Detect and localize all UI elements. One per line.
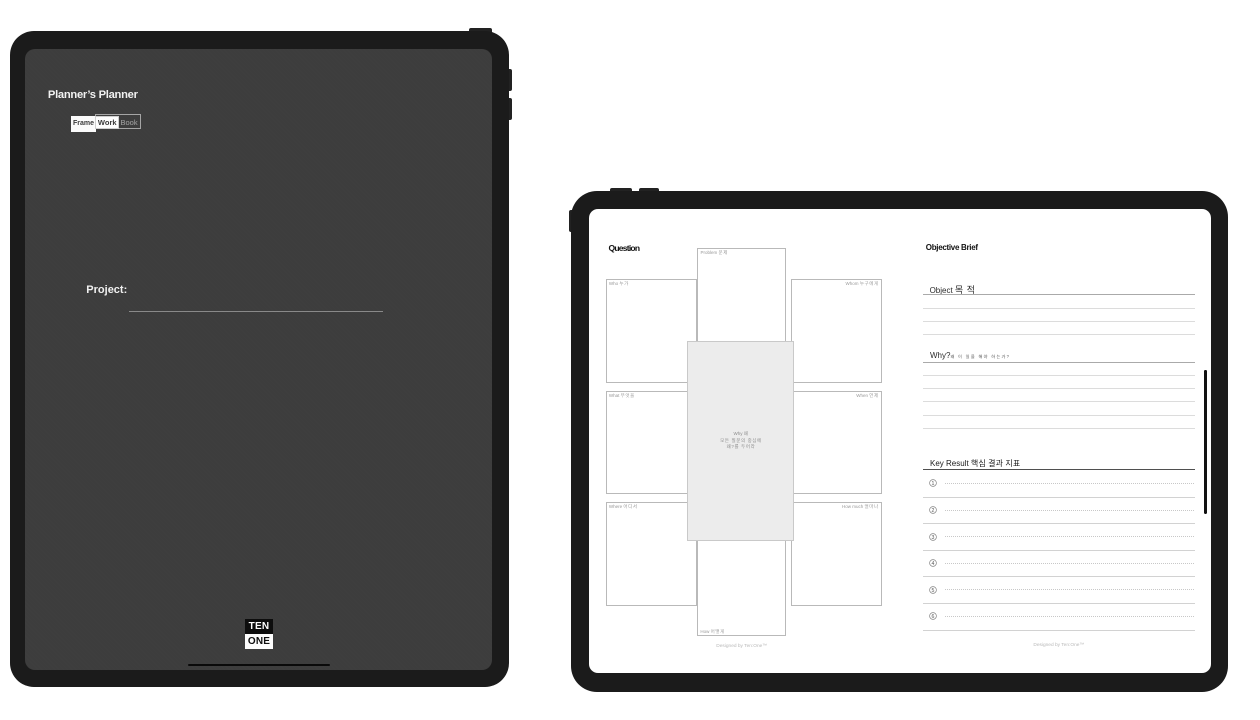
- svg-text:6: 6: [932, 614, 935, 620]
- svg-text:2: 2: [932, 508, 935, 514]
- svg-text:4: 4: [932, 561, 935, 567]
- svg-text:3: 3: [932, 535, 935, 541]
- svg-text:5: 5: [932, 588, 935, 594]
- svg-text:1: 1: [932, 481, 935, 487]
